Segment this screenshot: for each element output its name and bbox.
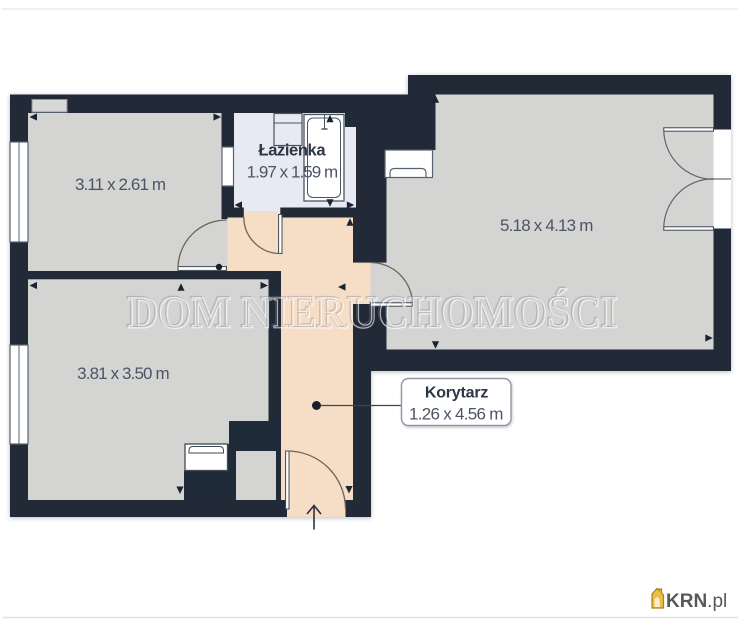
svg-text:3.81 x 3.50 m: 3.81 x 3.50 m: [77, 364, 169, 383]
svg-text:3.11 x 2.61 m: 3.11 x 2.61 m: [75, 175, 166, 194]
svg-text:1.97 x 1.59 m: 1.97 x 1.59 m: [247, 163, 339, 182]
svg-text:Łazienka: Łazienka: [259, 142, 327, 160]
svg-text:Korytarz: Korytarz: [425, 385, 488, 402]
svg-text:1.26 x 4.56 m: 1.26 x 4.56 m: [409, 404, 504, 423]
svg-text:KRN.pl: KRN.pl: [666, 591, 727, 612]
svg-text:5.18 x 4.13 m: 5.18 x 4.13 m: [500, 216, 594, 235]
svg-text:DOM NIERUCHOMOŚCI: DOM NIERUCHOMOŚCI: [128, 288, 618, 338]
